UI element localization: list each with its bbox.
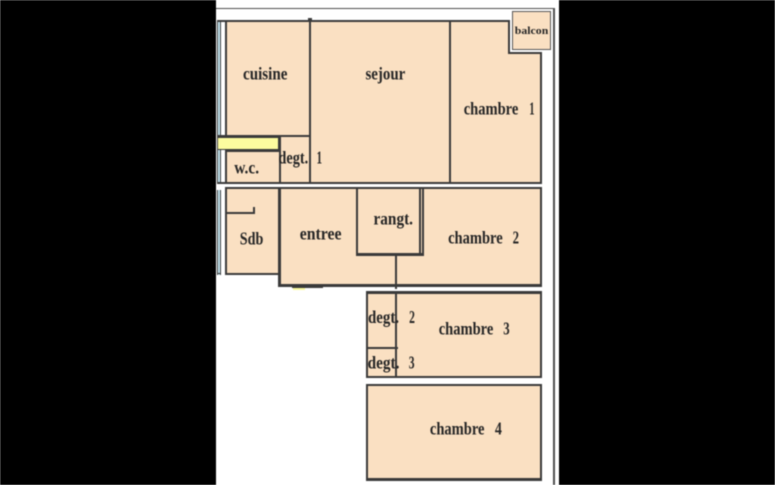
svg-text:1: 1 [317, 147, 323, 167]
svg-text:balcon: balcon [515, 26, 549, 37]
svg-text:degt.: degt. [368, 307, 399, 327]
svg-text:entree: entree [300, 224, 342, 244]
svg-text:w.c.: w.c. [234, 158, 259, 178]
svg-text:degt.: degt. [368, 352, 400, 372]
svg-text:degt.: degt. [278, 147, 308, 167]
svg-text:3: 3 [409, 352, 415, 372]
svg-text:cuisine: cuisine [243, 64, 288, 84]
svg-text:3: 3 [503, 319, 510, 339]
svg-text:2: 2 [513, 228, 519, 248]
svg-text:Sdb: Sdb [240, 228, 264, 248]
svg-text:chambre: chambre [439, 319, 494, 339]
svg-text:rangt.: rangt. [374, 209, 414, 229]
svg-text:chambre: chambre [464, 98, 519, 118]
svg-text:chambre: chambre [430, 418, 485, 438]
svg-text:chambre: chambre [448, 228, 503, 248]
svg-text:1: 1 [529, 98, 534, 118]
svg-text:sejour: sejour [366, 63, 406, 83]
svg-text:2: 2 [409, 307, 415, 327]
svg-text:4: 4 [495, 418, 502, 438]
